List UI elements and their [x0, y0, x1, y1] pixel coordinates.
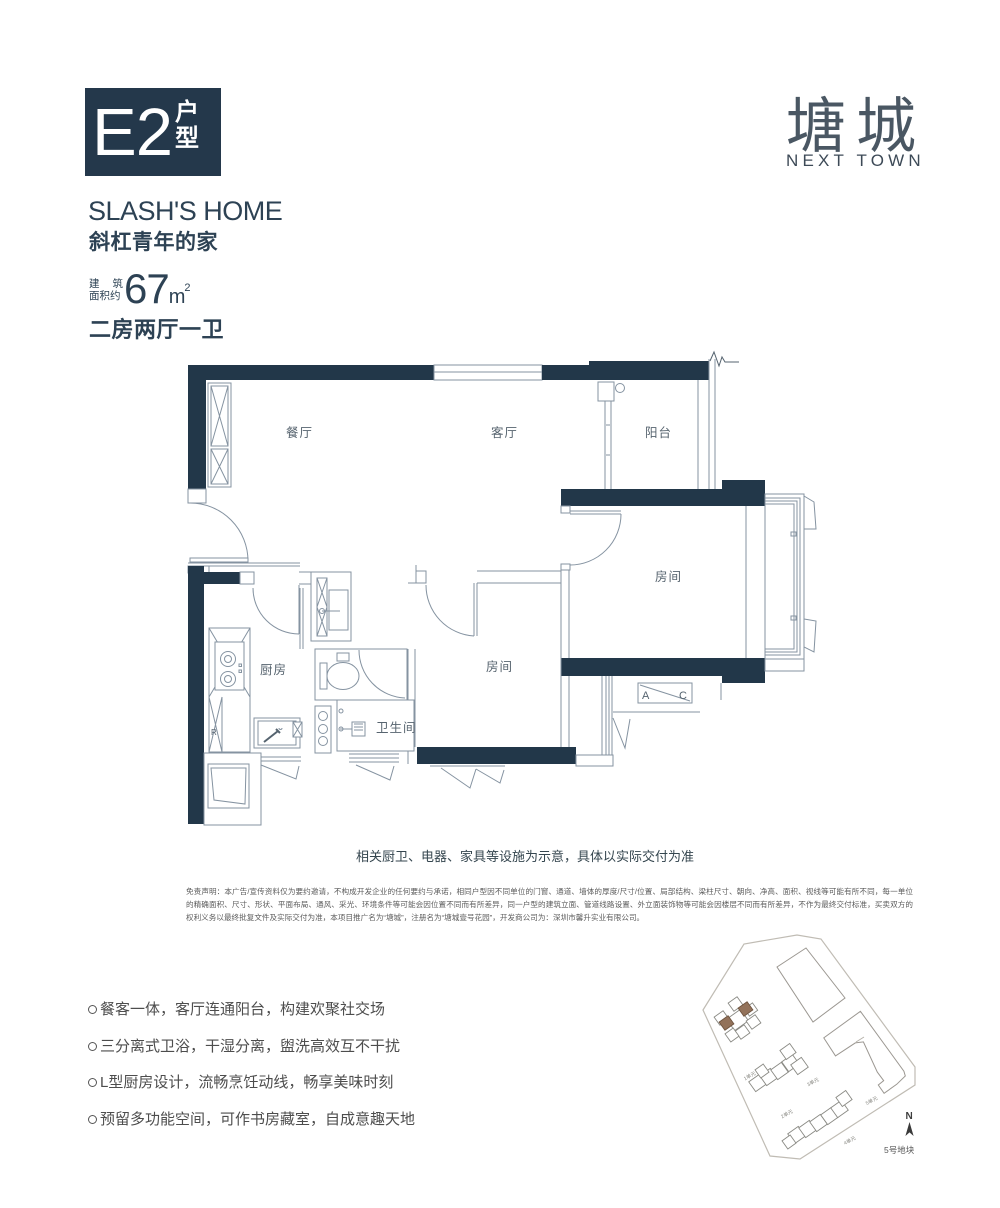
svg-text:3单元: 3单元: [806, 1076, 821, 1088]
svg-text:5单元: 5单元: [864, 1095, 879, 1107]
svg-text:4单元: 4单元: [843, 1135, 858, 1147]
svg-text:2单元: 2单元: [780, 1108, 795, 1120]
